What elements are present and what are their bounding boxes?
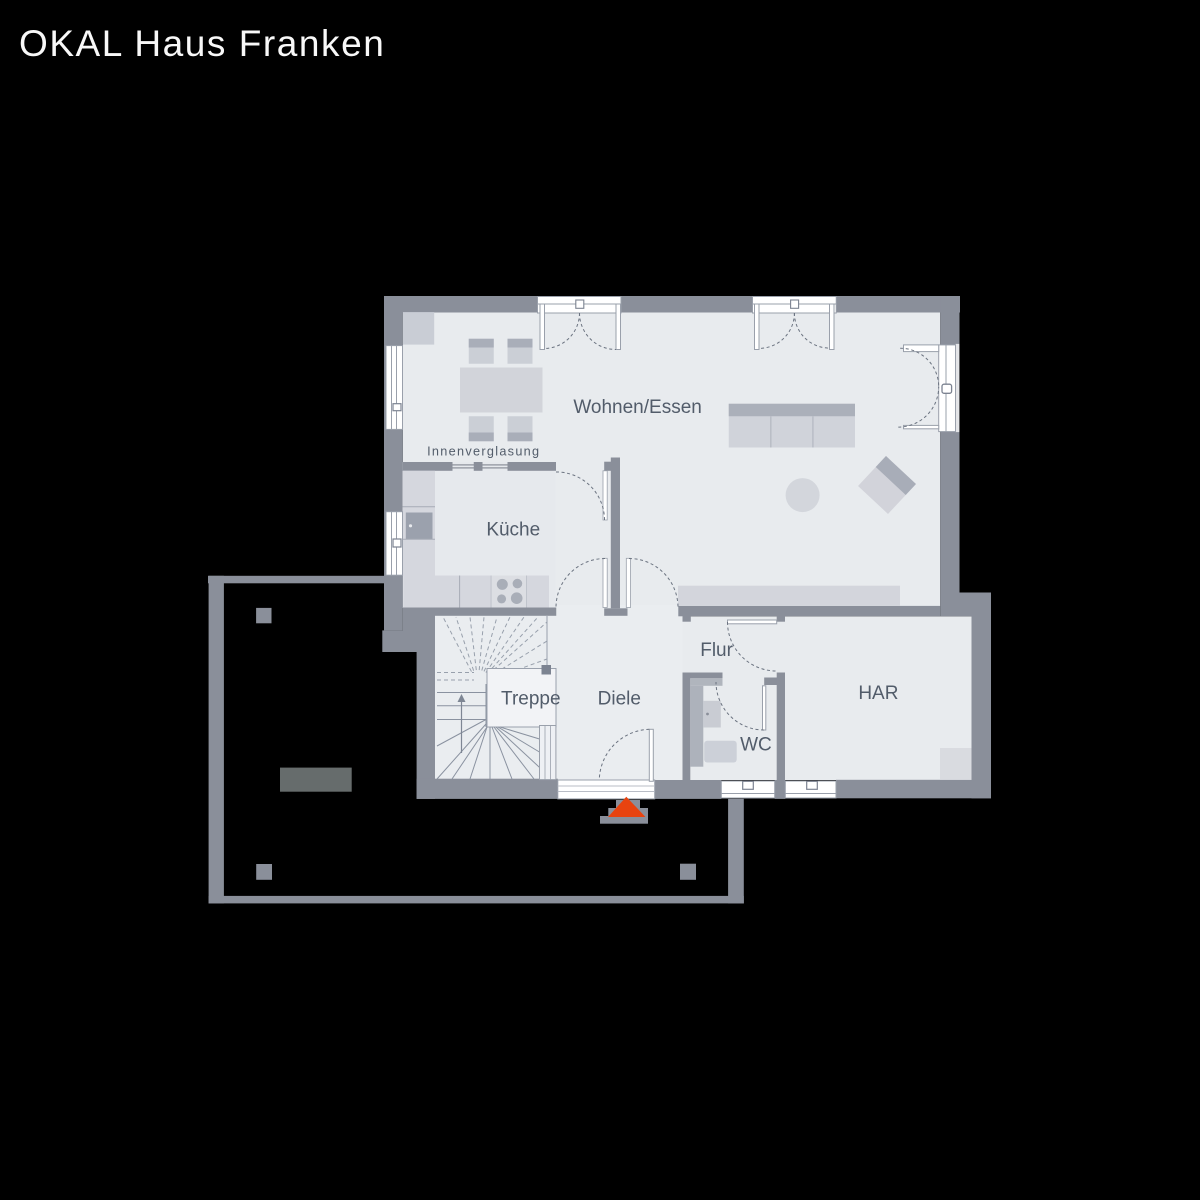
svg-text:HAR: HAR — [858, 683, 898, 704]
svg-text:Innenverglasung: Innenverglasung — [427, 445, 540, 459]
svg-text:Flur: Flur — [700, 640, 733, 661]
svg-text:Wohnen/Essen: Wohnen/Essen — [573, 397, 702, 418]
svg-text:Küche: Küche — [486, 520, 540, 541]
svg-text:Diele: Diele — [598, 688, 641, 709]
svg-text:Treppe: Treppe — [501, 688, 561, 709]
svg-text:WC: WC — [740, 734, 772, 755]
